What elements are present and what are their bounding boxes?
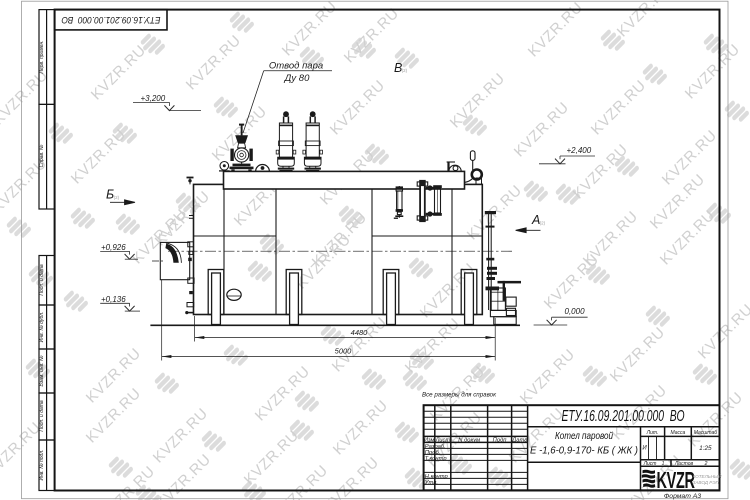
svg-text:Масса: Масса — [671, 430, 686, 436]
svg-text:(2): (2) — [540, 220, 546, 225]
svg-text:ЕТУ.16.09.201.00.000 ВО: ЕТУ.16.09.201.00.000 ВО — [562, 408, 685, 425]
svg-text:2: 2 — [704, 461, 708, 467]
svg-text:Изм: Изм — [424, 437, 435, 443]
svg-text:+2,400: +2,400 — [567, 146, 592, 155]
svg-text:Перв. примен.: Перв. примен. — [39, 40, 45, 73]
svg-text:Дата: Дата — [511, 438, 528, 444]
svg-text:ЗАВОД РЭП: ЗАВОД РЭП — [693, 480, 720, 485]
svg-text:1:25: 1:25 — [699, 445, 712, 452]
svg-text:Взам. инв. №: Взам. инв. № — [39, 355, 45, 387]
svg-text:N докум: N докум — [458, 438, 480, 444]
svg-text:Е -1,6-0,9-170- КБ ( ЖК ): Е -1,6-0,9-170- КБ ( ЖК ) — [530, 445, 638, 456]
svg-text:(2): (2) — [402, 68, 408, 73]
svg-text:Котел паровой: Котел паровой — [555, 431, 613, 442]
svg-text:(2): (2) — [114, 195, 120, 200]
svg-text:Лист: Лист — [643, 461, 657, 467]
svg-text:4480: 4480 — [351, 328, 369, 337]
svg-text:Листов: Листов — [674, 461, 694, 467]
svg-text:Проб.: Проб. — [425, 450, 441, 456]
svg-text:Подп. и дата: Подп. и дата — [39, 264, 45, 296]
svg-text:Инв. № дубл.: Инв. № дубл. — [39, 312, 45, 343]
svg-text:+0,926: +0,926 — [101, 243, 126, 252]
svg-text:Все размеры для справок: Все размеры для справок — [422, 392, 497, 399]
svg-text:+3,200: +3,200 — [141, 94, 166, 103]
svg-text:Инв. № подл.: Инв. № подл. — [39, 449, 45, 480]
svg-text:КОТЕЛЬНЫЙ: КОТЕЛЬНЫЙ — [693, 472, 723, 479]
svg-text:KVZR: KVZR — [657, 469, 696, 494]
svg-text:Подп: Подп — [493, 438, 508, 444]
svg-text:Отвод пара: Отвод пара — [269, 61, 323, 72]
svg-text:И: И — [642, 445, 647, 451]
svg-text:Т.контр: Т.контр — [425, 456, 448, 462]
svg-text:Масштаб: Масштаб — [694, 430, 718, 436]
svg-text:Лит.: Лит. — [646, 430, 659, 436]
svg-text:+0,136: +0,136 — [101, 295, 126, 304]
svg-text:0,000: 0,000 — [565, 307, 586, 316]
svg-text:5000: 5000 — [335, 347, 353, 356]
svg-text:Утв.: Утв. — [424, 480, 438, 486]
svg-text:ЕТУ.16.09.201.00.000 ВО: ЕТУ.16.09.201.00.000 ВО — [62, 15, 161, 25]
svg-text:Ду 80: Ду 80 — [284, 73, 310, 84]
svg-text:Подп. и дата: Подп. и дата — [39, 400, 45, 432]
svg-text:Формат А3: Формат А3 — [664, 493, 701, 500]
svg-text:Лист: Лист — [435, 437, 451, 443]
svg-text:Справ. №: Справ. № — [39, 144, 45, 167]
svg-text:1: 1 — [662, 461, 665, 467]
